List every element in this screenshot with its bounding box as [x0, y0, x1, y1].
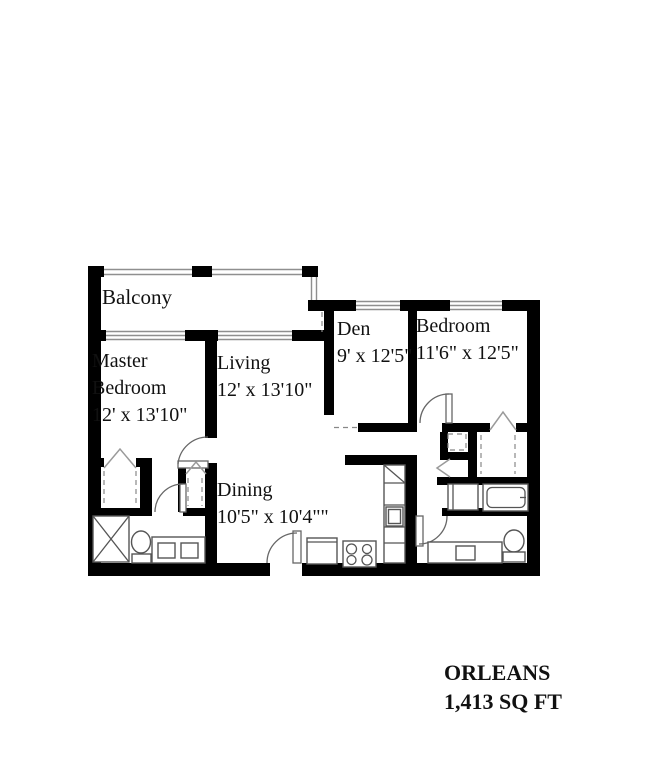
- refrigerator: [307, 538, 337, 564]
- room-dimensions: 12' x 13'10": [92, 402, 210, 429]
- window-master-bedroom: [106, 330, 185, 341]
- bifold-master-closet: [104, 449, 136, 468]
- door-master-bedroom: [178, 437, 208, 468]
- bathtub: [483, 484, 528, 511]
- room-dimensions: 11'6" x 12'5": [416, 340, 519, 367]
- mechanical-closet-box: [448, 434, 466, 450]
- room-label-living: Living 12' x 13'10": [217, 350, 349, 404]
- window-bedroom: [450, 300, 502, 311]
- toilet-master: [132, 531, 152, 563]
- room-dimensions: 9' x 12'5": [337, 343, 412, 370]
- bifold-bedroom-closet: [490, 412, 516, 430]
- room-dimensions: 10'5" x 10'4"": [217, 504, 329, 531]
- floorplan-page: Balcony Master Bedroom 12' x 13'10" Livi…: [0, 0, 650, 757]
- bifold-hall-linen: [437, 459, 450, 477]
- window-living: [218, 330, 292, 341]
- room-name: Balcony: [102, 284, 172, 311]
- kitchen-sink: [386, 507, 403, 526]
- plan-title: ORLEANS 1,413 SQ FT: [444, 658, 562, 716]
- plan-area: 1,413 SQ FT: [444, 687, 562, 716]
- plan-name: ORLEANS: [444, 658, 562, 687]
- room-name: Master Bedroom: [92, 348, 210, 402]
- door-bedroom: [420, 394, 452, 423]
- room-name: Den: [337, 316, 412, 343]
- room-name: Dining: [217, 477, 329, 504]
- room-name: Bedroom: [416, 313, 519, 340]
- door-master-bathroom: [155, 484, 186, 512]
- room-label-bedroom: Bedroom 11'6" x 12'5": [416, 313, 519, 367]
- vanity-master: [152, 537, 205, 563]
- room-label-master-bedroom: Master Bedroom 12' x 13'10": [92, 348, 210, 429]
- room-label-balcony: Balcony: [102, 284, 172, 311]
- room-name: Living: [217, 350, 349, 377]
- stove: [343, 541, 376, 567]
- room-dimensions: 12' x 13'10": [217, 377, 349, 404]
- room-label-den: Den 9' x 12'5": [337, 316, 412, 370]
- door-dining-entry: [267, 531, 301, 563]
- washer-dryer: [448, 484, 478, 510]
- room-label-dining: Dining 10'5" x 10'4"": [217, 477, 329, 531]
- window-den: [356, 300, 400, 311]
- toilet-hall-bath: [503, 530, 525, 562]
- shower: [93, 516, 129, 562]
- vanity-hall-bath: [428, 542, 502, 563]
